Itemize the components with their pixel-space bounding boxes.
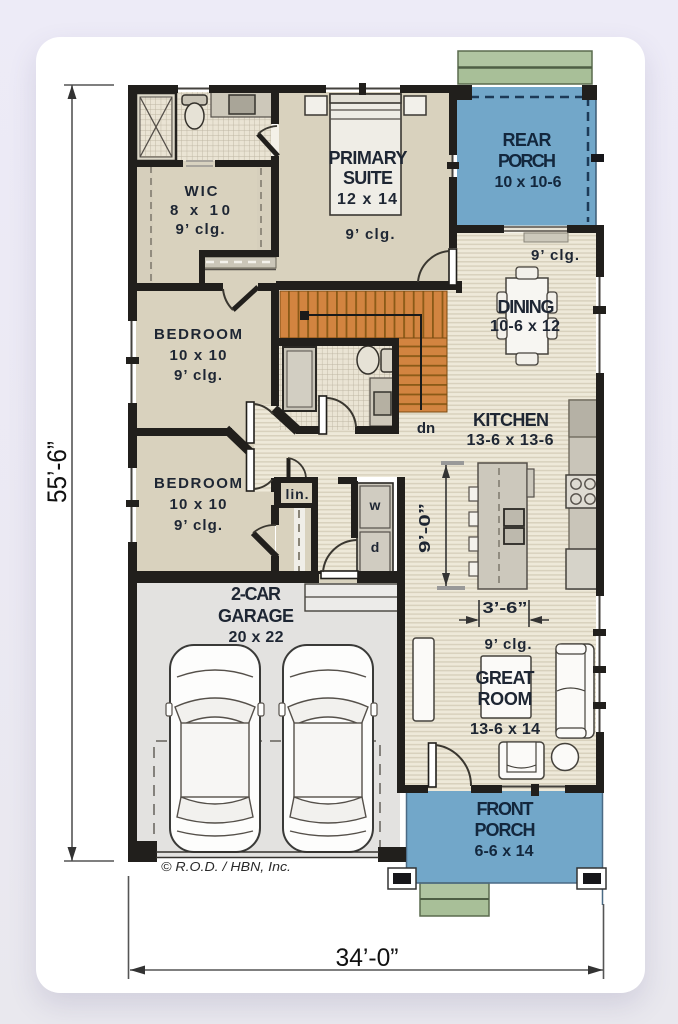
- svg-text:13-6 x 13-6: 13-6 x 13-6: [467, 432, 554, 449]
- svg-text:9’-0”: 9’-0”: [417, 503, 434, 553]
- svg-text:dn: dn: [417, 420, 435, 437]
- svg-text:w: w: [369, 497, 381, 513]
- svg-text:FRONT: FRONT: [477, 799, 534, 819]
- svg-text:13-6 x 14: 13-6 x 14: [470, 721, 540, 738]
- svg-text:9’ clg.: 9’ clg.: [531, 247, 579, 264]
- svg-text:BEDROOM: BEDROOM: [154, 326, 242, 343]
- svg-text:d: d: [371, 539, 380, 555]
- svg-text:2-CAR: 2-CAR: [231, 584, 281, 604]
- svg-text:BEDROOM: BEDROOM: [154, 475, 242, 492]
- svg-text:PRIMARY: PRIMARY: [329, 148, 408, 168]
- svg-text:10-6 x 12: 10-6 x 12: [490, 318, 560, 335]
- svg-text:WIC: WIC: [185, 183, 218, 200]
- svg-text:© R.O.D. / HBN, Inc.: © R.O.D. / HBN, Inc.: [161, 860, 291, 874]
- svg-text:10 x 10-6: 10 x 10-6: [495, 174, 562, 191]
- svg-text:9’ clg.: 9’ clg.: [485, 636, 532, 653]
- svg-text:9’ clg.: 9’ clg.: [176, 221, 225, 238]
- svg-text:10 x 10: 10 x 10: [170, 347, 227, 364]
- svg-text:DINING: DINING: [498, 297, 555, 317]
- svg-text:34’-0”: 34’-0”: [336, 944, 399, 972]
- svg-text:6-6 x 14: 6-6 x 14: [475, 843, 534, 860]
- svg-text:lin.: lin.: [286, 486, 309, 502]
- svg-text:PORCH: PORCH: [475, 820, 536, 840]
- svg-text:20 x 22: 20 x 22: [229, 629, 284, 646]
- svg-text:55’-6”: 55’-6”: [42, 441, 72, 503]
- svg-text:9’ clg.: 9’ clg.: [174, 367, 222, 384]
- svg-text:SUITE: SUITE: [343, 168, 393, 188]
- svg-text:KITCHEN: KITCHEN: [473, 410, 549, 430]
- svg-text:9’ clg.: 9’ clg.: [346, 226, 395, 243]
- svg-text:PORCH: PORCH: [498, 151, 556, 171]
- svg-text:GARAGE: GARAGE: [218, 606, 294, 626]
- svg-text:10 x 10: 10 x 10: [170, 496, 227, 513]
- svg-text:GREAT: GREAT: [476, 668, 535, 688]
- svg-text:3’-6”: 3’-6”: [483, 600, 528, 617]
- svg-text:ROOM: ROOM: [478, 689, 533, 709]
- svg-text:9’ clg.: 9’ clg.: [174, 517, 222, 534]
- svg-text:REAR: REAR: [503, 130, 552, 150]
